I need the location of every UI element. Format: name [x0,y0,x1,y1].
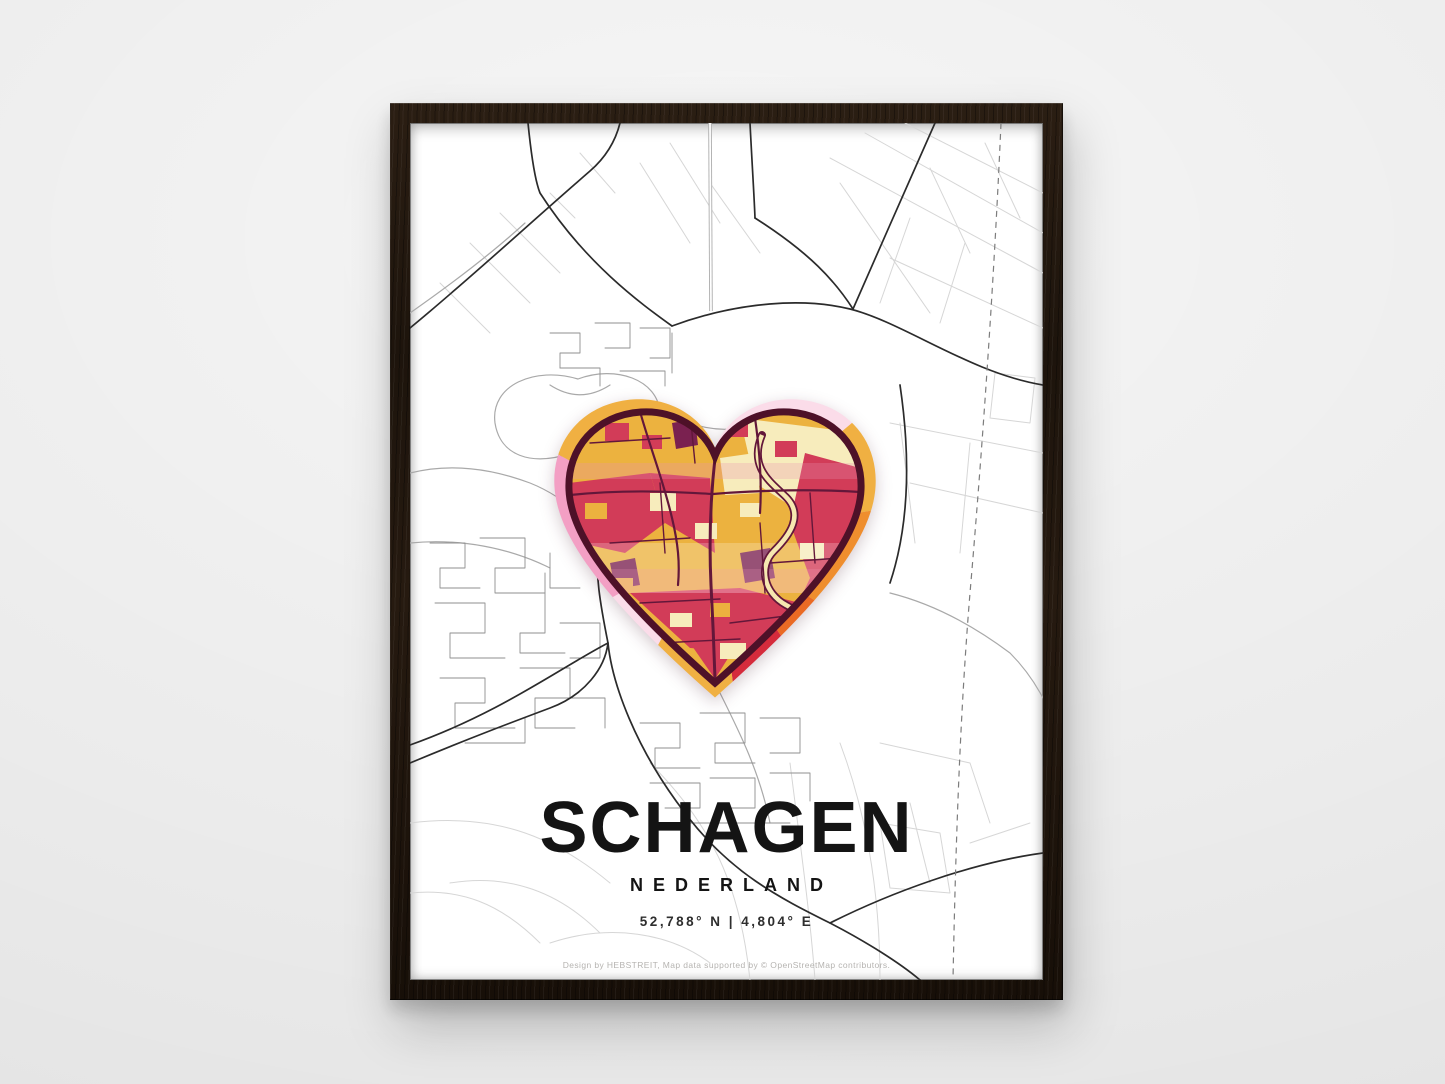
poster-subtitle: NEDERLAND [410,876,1043,894]
poster-credit: Design by HEBSTREIT, Map data supported … [410,961,1043,970]
picture-frame: SCHAGEN NEDERLAND 52,788° N | 4,804° E D… [390,103,1063,1000]
poster-title: SCHAGEN [410,792,1043,864]
poster-coordinates: 52,788° N | 4,804° E [410,915,1043,929]
map-poster: SCHAGEN NEDERLAND 52,788° N | 4,804° E D… [410,123,1043,980]
